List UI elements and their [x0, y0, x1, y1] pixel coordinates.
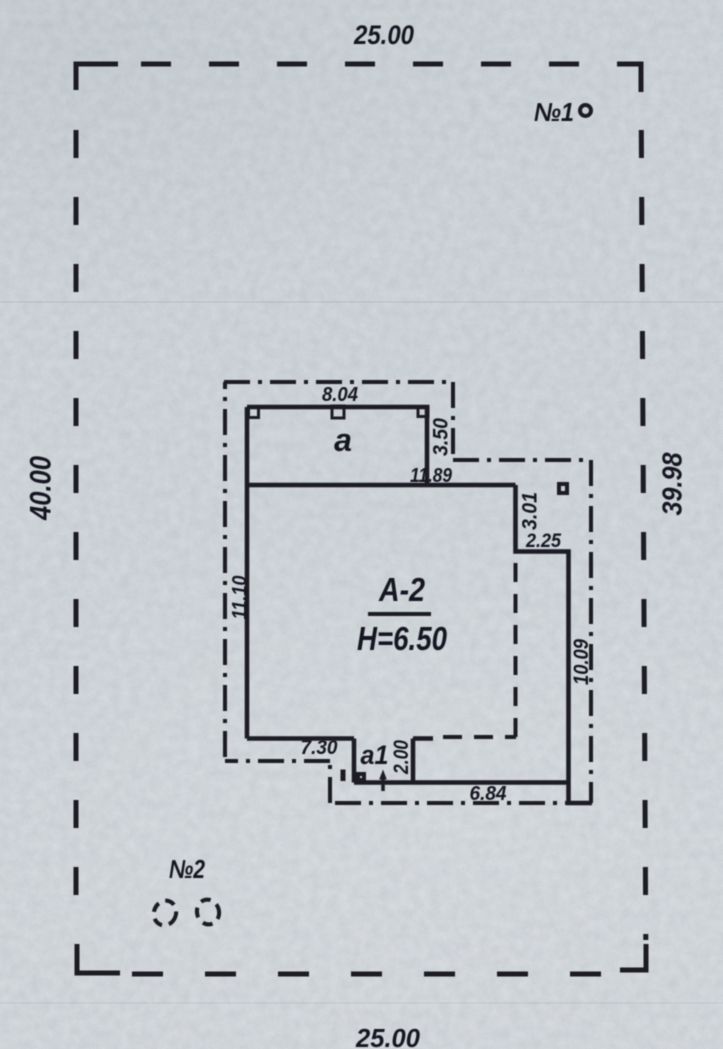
svg-text:3.01: 3.01	[518, 492, 541, 530]
svg-text:8.04: 8.04	[322, 384, 358, 406]
svg-text:6.84: 6.84	[470, 783, 507, 805]
svg-text:№2: №2	[169, 854, 205, 884]
svg-text:2.00: 2.00	[390, 740, 413, 775]
svg-text:№1: №1	[534, 97, 574, 127]
svg-text:39.98: 39.98	[656, 452, 687, 515]
svg-text:2.25: 2.25	[525, 531, 561, 552]
svg-text:11.10: 11.10	[228, 575, 251, 619]
svg-text:25.00: 25.00	[355, 1023, 421, 1049]
svg-text:11.89: 11.89	[410, 465, 453, 487]
svg-text:25.00: 25.00	[353, 20, 414, 50]
svg-text:a1: a1	[361, 740, 389, 770]
svg-text:3.50: 3.50	[429, 418, 452, 456]
svg-text:40.00: 40.00	[25, 456, 58, 521]
svg-text:a: a	[334, 422, 352, 458]
svg-text:10.09: 10.09	[570, 639, 593, 685]
svg-text:7.30: 7.30	[301, 737, 338, 759]
svg-text:A-2: A-2	[378, 571, 425, 608]
svg-text:H=6.50: H=6.50	[357, 620, 448, 657]
